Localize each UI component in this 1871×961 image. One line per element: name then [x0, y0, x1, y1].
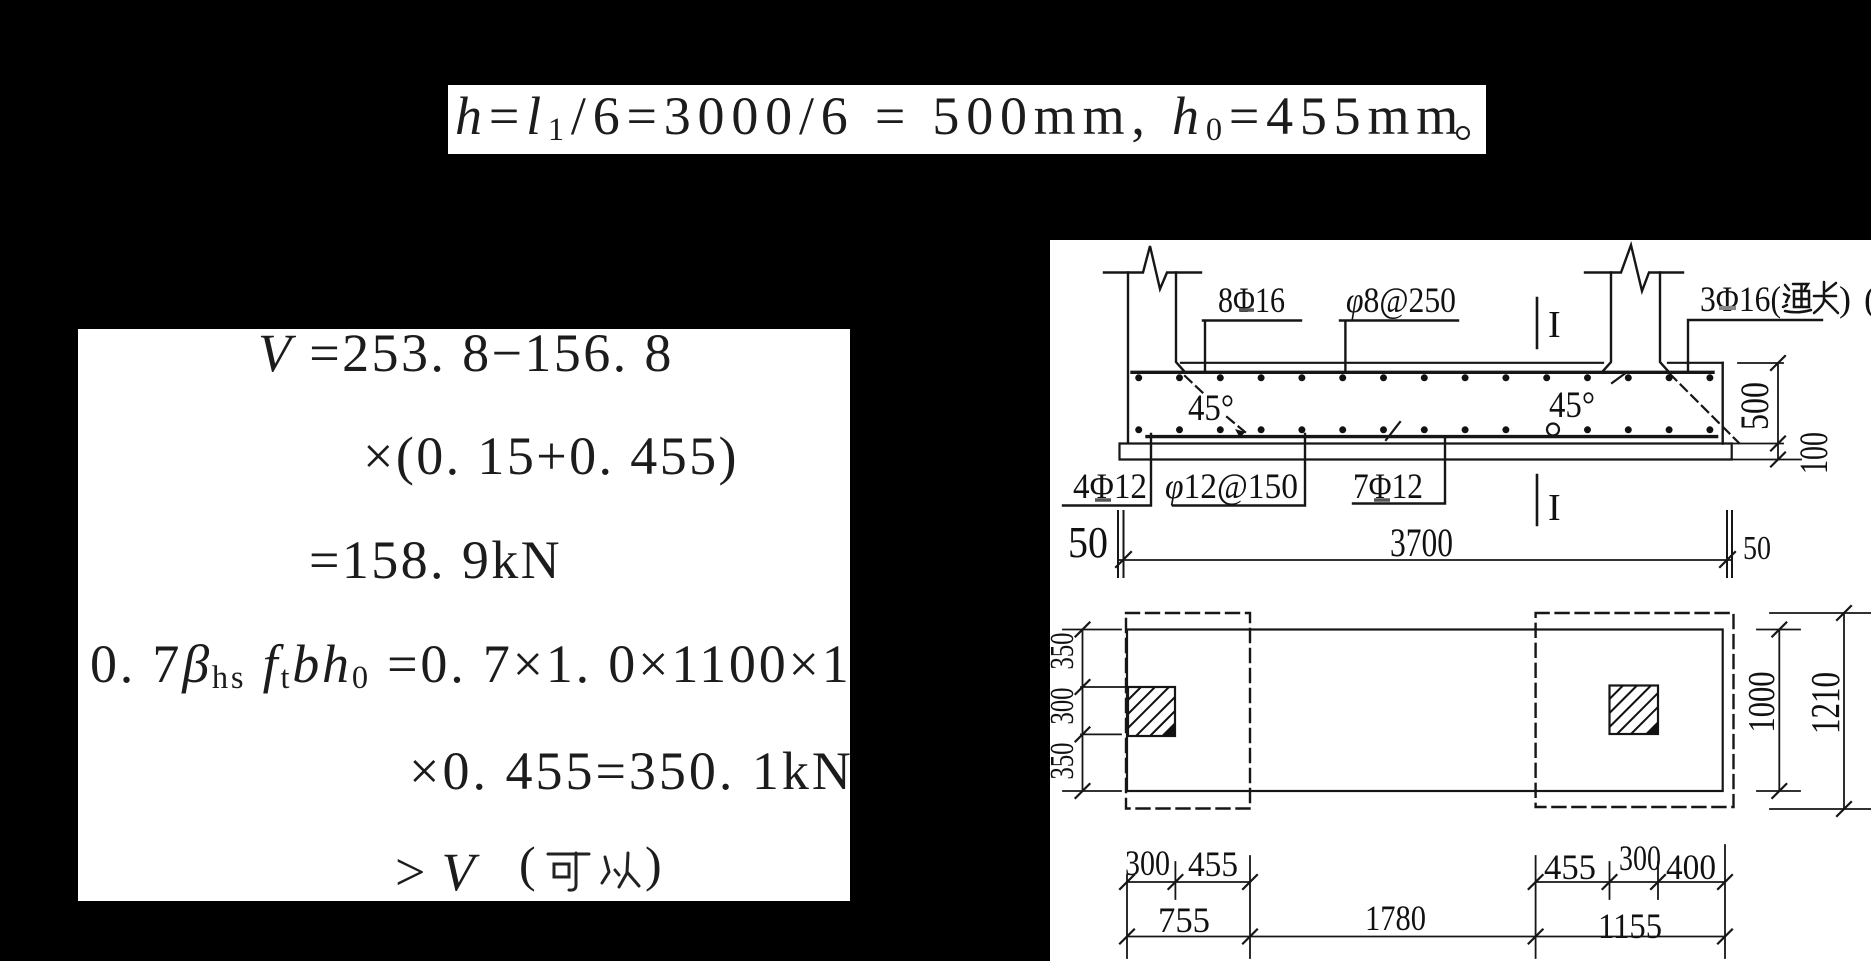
svg-text:350: 350: [1050, 633, 1081, 670]
svg-text:φ12@150: φ12@150: [1165, 466, 1298, 506]
svg-text:1155: 1155: [1598, 906, 1662, 946]
svg-text:3700: 3700: [1390, 520, 1453, 565]
svg-text:500: 500: [1732, 382, 1777, 430]
svg-text:(: (: [1864, 279, 1871, 319]
svg-text:8Φ16: 8Φ16: [1218, 280, 1285, 320]
svg-text:300: 300: [1050, 688, 1081, 725]
svg-text:φ8@250: φ8@250: [1346, 280, 1456, 320]
svg-text:45°: 45°: [1549, 385, 1595, 426]
svg-text:45°: 45°: [1188, 388, 1234, 429]
svg-text:1000: 1000: [1741, 672, 1783, 733]
svg-text:50: 50: [1068, 518, 1108, 567]
svg-text:455: 455: [1544, 847, 1596, 887]
svg-text:50: 50: [1743, 530, 1771, 567]
svg-text:350: 350: [1050, 743, 1081, 780]
svg-text:I: I: [1548, 304, 1561, 346]
svg-text:300: 300: [1125, 843, 1170, 883]
svg-text:755: 755: [1158, 900, 1210, 940]
svg-text:1780: 1780: [1365, 898, 1426, 938]
svg-text:100: 100: [1791, 432, 1836, 474]
svg-text:400: 400: [1666, 847, 1716, 887]
svg-text:): ): [1839, 279, 1851, 319]
svg-text:455: 455: [1188, 844, 1238, 884]
svg-text:1210: 1210: [1802, 672, 1848, 734]
svg-text:3Φ16(: 3Φ16(: [1700, 279, 1781, 319]
svg-text:I: I: [1548, 487, 1561, 529]
svg-text:300: 300: [1619, 838, 1661, 878]
